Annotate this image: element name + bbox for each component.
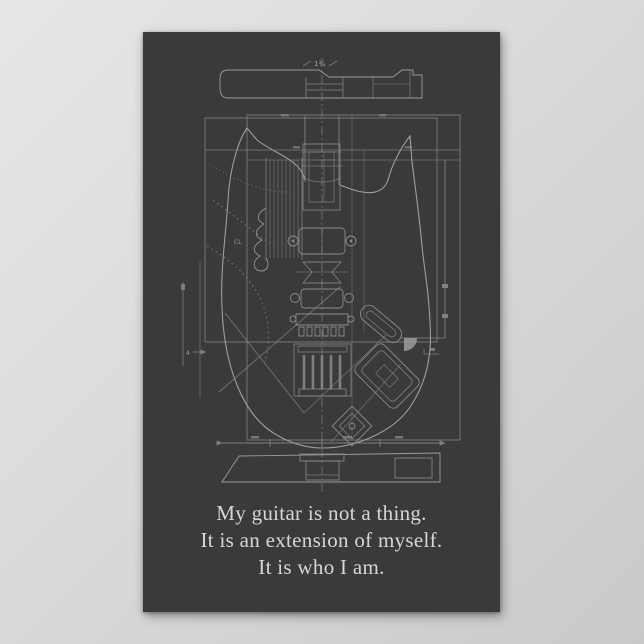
left-dimension-label: 4	[186, 350, 190, 357]
guitar-body-outline	[222, 128, 431, 448]
neck-cavity	[303, 144, 340, 210]
quote-line-2: It is an extension of myself.	[143, 527, 500, 554]
tremolo-springs	[294, 344, 351, 396]
top-side-view: 1¾	[220, 60, 422, 98]
page-background: 1¾	[0, 0, 644, 644]
top-dimension-label: 1¾	[314, 60, 325, 68]
guitar-blueprint-poster: 1¾	[143, 32, 500, 612]
bottom-side-view	[222, 453, 440, 482]
quote-line-1: My guitar is not a thing.	[143, 500, 500, 527]
quote-line-3: It is who I am.	[143, 554, 500, 581]
pickups-and-hardware	[288, 144, 422, 446]
construction-lines	[207, 164, 401, 442]
quote-block: My guitar is not a thing. It is an exten…	[143, 500, 500, 581]
control-cavity	[352, 341, 421, 410]
filled-wedge	[404, 338, 417, 351]
centerline-mark-label: CL	[234, 239, 242, 246]
